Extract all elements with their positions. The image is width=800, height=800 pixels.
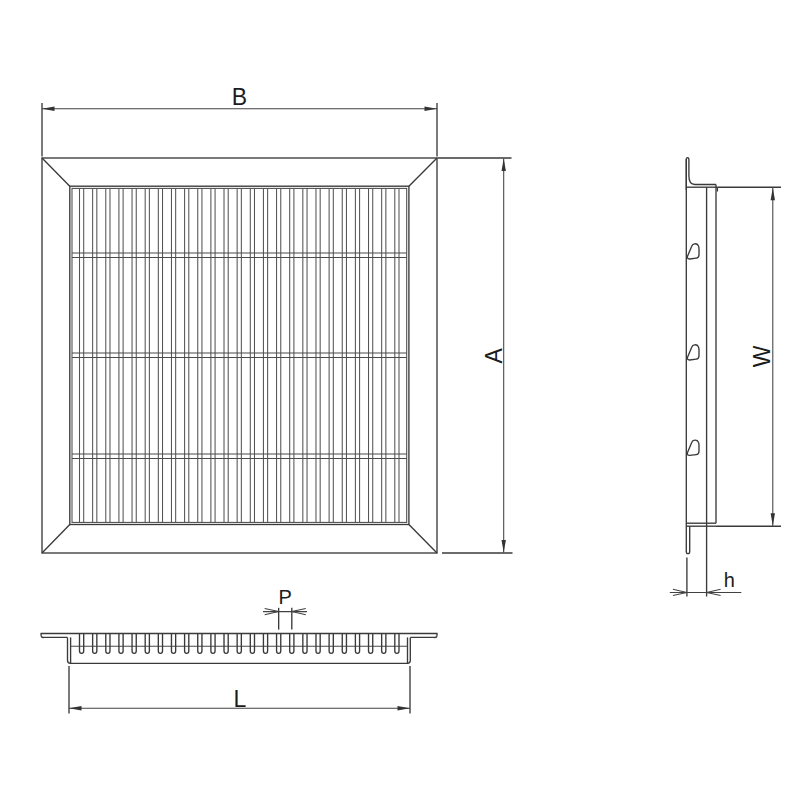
svg-text:P: P — [279, 586, 292, 608]
svg-text:h: h — [724, 569, 735, 591]
svg-text:L: L — [234, 686, 247, 712]
svg-text:A: A — [481, 347, 507, 363]
svg-text:B: B — [232, 84, 247, 110]
svg-text:W: W — [749, 345, 775, 367]
